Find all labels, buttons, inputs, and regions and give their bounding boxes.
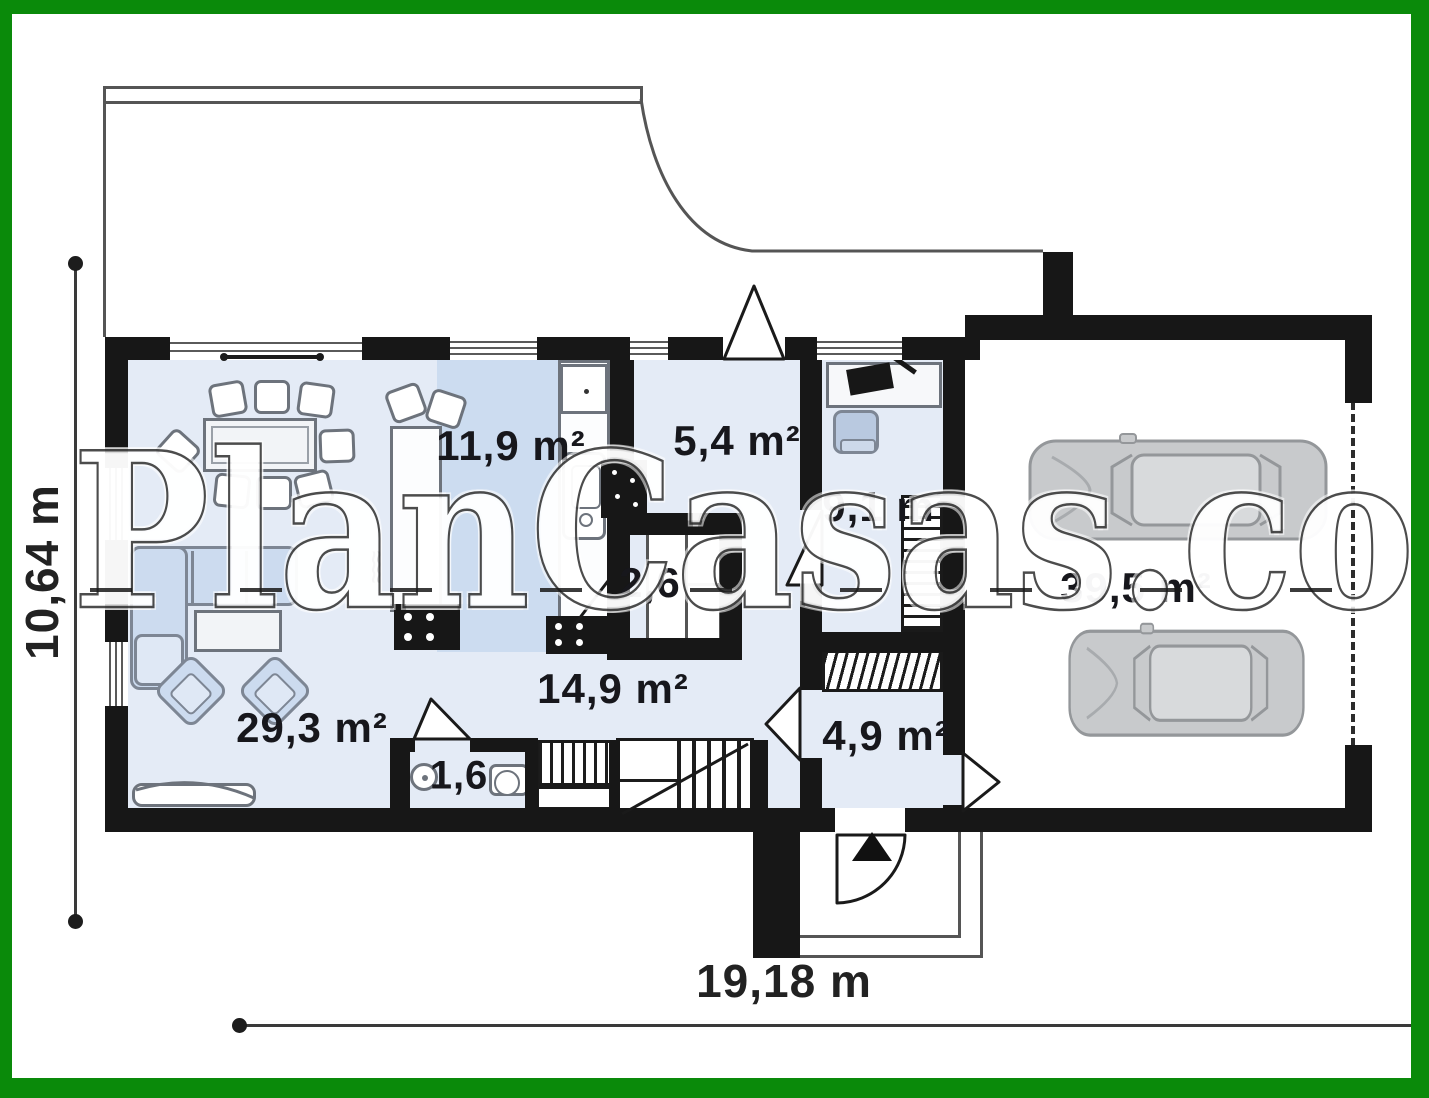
room-label-wc: 1,6	[430, 754, 489, 799]
dimension-dot	[68, 256, 83, 271]
stairs-diagonal	[622, 744, 748, 814]
tv-bench-curve	[136, 783, 254, 798]
watermark-strike-line	[90, 588, 1400, 592]
frame-border-left	[0, 0, 12, 1098]
frame-border-bottom	[0, 1078, 1429, 1098]
dimension-line-width	[239, 1024, 1422, 1027]
door-swing-entry-garage	[963, 753, 999, 811]
room-label-entry: 4,9 m²	[822, 712, 949, 760]
door-swing-hall-entry	[766, 688, 800, 760]
watermark: PlanCasas.com	[72, 424, 1429, 639]
frame-border-right	[1411, 0, 1429, 1098]
room-label-hall: 14,9 m²	[537, 665, 689, 713]
dimension-label-height: 10,64 m	[15, 484, 69, 660]
door-swing-wc	[414, 699, 470, 739]
door-swing-terrace	[724, 286, 784, 359]
terrace-curve	[641, 99, 1043, 251]
room-label-living: 29,3 m²	[236, 704, 388, 752]
frame-border-top	[0, 0, 1429, 14]
dimension-dot	[68, 914, 83, 929]
floor-plan: ≈≈≈	[0, 0, 1429, 1098]
dimension-label-width: 19,18 m	[696, 954, 872, 1008]
dimension-dot	[232, 1018, 247, 1033]
